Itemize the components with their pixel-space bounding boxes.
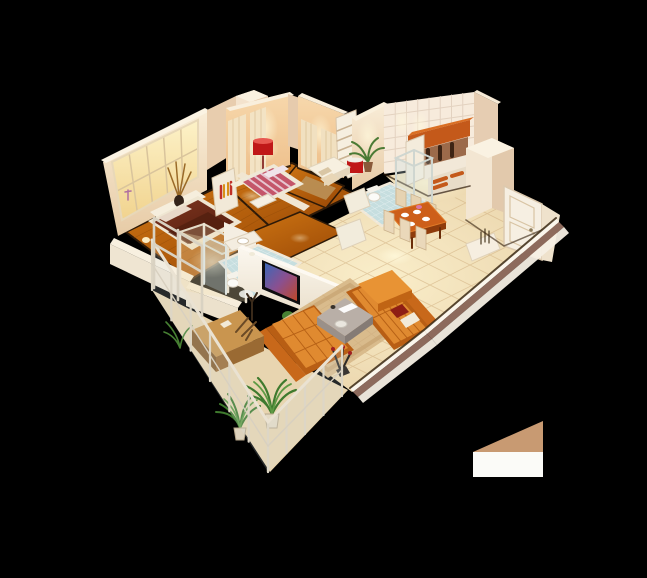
wall-fragment-white <box>473 452 543 477</box>
dining-plate-1 <box>401 213 409 217</box>
flower-bud-3 <box>348 351 352 355</box>
dining-plate-3 <box>422 217 430 221</box>
bath2-toilet <box>368 193 380 201</box>
kitchen-spotlight-1 <box>393 107 411 137</box>
dining-chair-front-2 <box>400 218 410 242</box>
curtain-study-left <box>301 119 317 172</box>
dining-plate-2 <box>413 210 421 214</box>
wall-fragment-tan <box>473 421 543 452</box>
lamp-master-shade-top <box>253 138 273 144</box>
flower-bud-1 <box>331 347 335 351</box>
tv-wall-decor <box>249 252 255 256</box>
dining-chair-front-3 <box>416 226 426 250</box>
dining-flowers <box>416 205 422 209</box>
page: { "scene": { "alt": "3D isometric cutawa… <box>0 0 647 578</box>
entry-door-knob <box>529 228 533 232</box>
floor-glow-dining <box>377 247 413 265</box>
coffee-table-decor <box>331 305 336 309</box>
coffee-table-plate <box>335 321 347 328</box>
ensuite-toilet <box>227 279 239 287</box>
floor-glow-hall <box>290 233 310 243</box>
dining-chair-back-1 <box>396 188 406 208</box>
floorplan-scene <box>0 0 647 578</box>
dining-chair-front-1 <box>384 210 394 234</box>
ensuite-basin <box>238 238 249 244</box>
apartment-3d-render <box>0 0 647 578</box>
bed2-lamp-glow <box>142 237 150 243</box>
lamp-study-top <box>347 158 363 163</box>
